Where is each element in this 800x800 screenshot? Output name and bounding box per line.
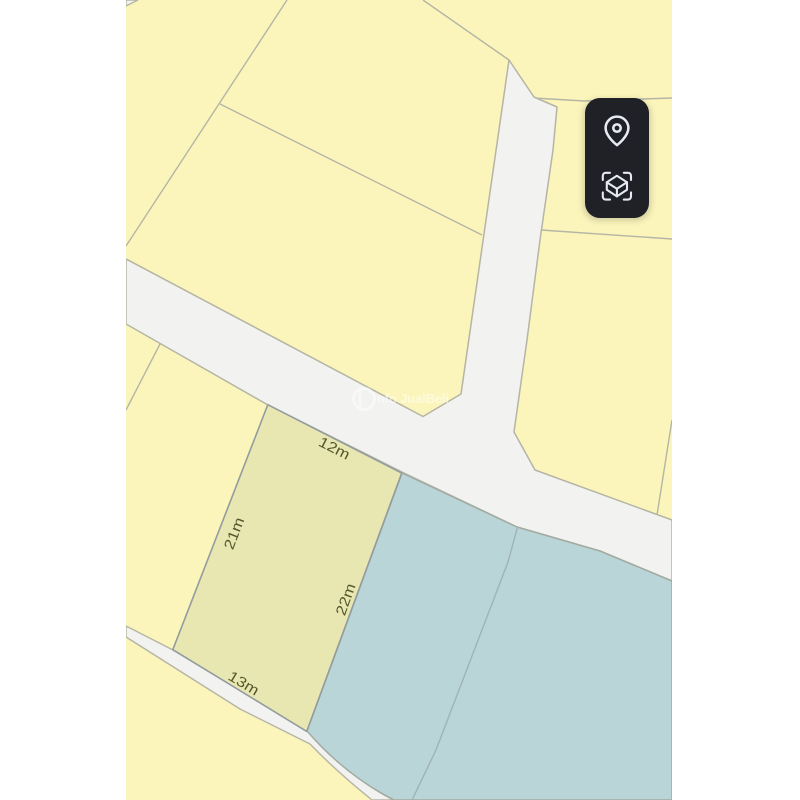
svg-text:nfo JualBeli: nfo JualBeli	[377, 391, 449, 406]
